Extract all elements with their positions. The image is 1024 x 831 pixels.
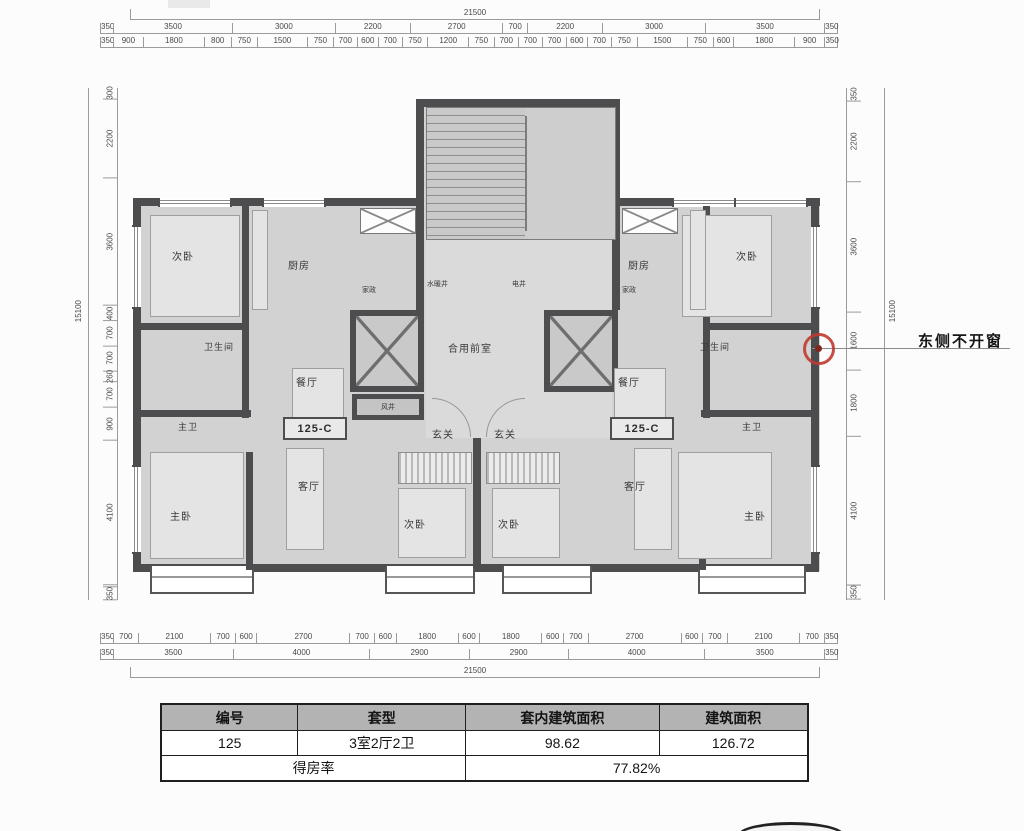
dim-value: 2200 xyxy=(335,23,410,33)
dim-value: 350 xyxy=(824,649,838,659)
bed-master-left xyxy=(150,452,244,559)
top-dim-row-groups: 3503500300022002700700220030003500350 xyxy=(100,20,838,34)
dim-value: 600 xyxy=(541,633,562,643)
dim-value: 700 xyxy=(587,37,611,47)
dim-value: 1800 xyxy=(847,371,861,437)
dim-value: 2900 xyxy=(369,649,468,659)
spec-value-gross-area: 126.72 xyxy=(659,730,807,755)
sofa-right xyxy=(634,448,672,550)
dim-value: 3500 xyxy=(705,23,824,33)
bed-master-right xyxy=(678,452,772,559)
spec-value-interior-area: 98.62 xyxy=(465,730,659,755)
dim-value: 700 xyxy=(103,321,117,347)
dim-value: 350 xyxy=(100,649,113,659)
dim-value: 3600 xyxy=(103,178,117,306)
room-label-master-bath-left: 主卫 xyxy=(178,420,198,433)
window-top-4 xyxy=(734,198,808,207)
dim-value: 3500 xyxy=(113,649,233,659)
spec-table-data-row: 125 3室2厅2卫 98.62 126.72 xyxy=(162,730,807,755)
kitchen-counter-right xyxy=(690,210,706,310)
bay-window-4 xyxy=(698,566,806,594)
bottom-dim-row-groups: 350350040002900290040003500350 xyxy=(100,646,838,660)
dim-value: 700 xyxy=(494,37,518,47)
dim-value: 350 xyxy=(847,88,861,102)
window-right-1 xyxy=(811,225,820,309)
dim-value: 600 xyxy=(374,633,395,643)
dim-value: 750 xyxy=(231,37,257,47)
room-label-foyer-left: 玄关 xyxy=(432,426,454,441)
left-dim-column: 300220036004007007002607009004100350 xyxy=(103,88,118,600)
spec-value-layout: 3室2厅2卫 xyxy=(297,730,465,755)
dim-value: 2200 xyxy=(527,23,602,33)
dim-value: 350 xyxy=(100,37,113,47)
dim-value: 750 xyxy=(611,37,637,47)
dim-value: 2700 xyxy=(410,23,502,33)
bay-window-1 xyxy=(150,566,254,594)
room-label-master-bath-right: 主卫 xyxy=(742,420,762,433)
spec-table: 编号 套型 套内建筑面积 建筑面积 125 3室2厅2卫 98.62 126.7… xyxy=(160,703,809,782)
room-label-bathroom-left: 卫生间 xyxy=(204,340,234,353)
elevator-right xyxy=(544,310,618,392)
dim-value: 350 xyxy=(847,585,861,600)
elevator-x-icon xyxy=(550,316,612,386)
right-total-dim-line xyxy=(884,88,885,600)
room-label-electrical-shaft: 电井 xyxy=(512,279,526,289)
room-label-shared-lobby: 合用前室 xyxy=(448,340,492,355)
dim-value: 900 xyxy=(103,408,117,441)
top-dim-total-row: 21500 xyxy=(130,6,820,20)
dim-value: 350 xyxy=(103,586,117,600)
wall-int-5 xyxy=(246,452,253,570)
dim-value: 600 xyxy=(235,633,256,643)
dim-value: 350 xyxy=(824,633,838,643)
bed-top-left xyxy=(150,215,240,317)
room-label-housekeeping-left: 家政 xyxy=(362,285,376,295)
unit-code-right: 125-C xyxy=(610,417,674,440)
right-total-dim: 15100 xyxy=(888,300,897,322)
spec-header-layout: 套型 xyxy=(297,705,465,730)
logo-partial xyxy=(738,822,844,831)
wall-int-9 xyxy=(701,410,819,417)
window-top-1 xyxy=(158,198,232,207)
wall-center-divider xyxy=(473,438,481,568)
room-label-housekeeping-right: 家政 xyxy=(622,285,636,295)
elevator-x-icon xyxy=(356,316,418,386)
closet-hatch-left xyxy=(398,452,472,484)
dim-value: 700 xyxy=(563,633,588,643)
dim-value: 1500 xyxy=(257,37,307,47)
x-window-left xyxy=(360,208,416,234)
dim-value: 350 xyxy=(100,23,113,33)
dim-value: 350 xyxy=(100,633,113,643)
dim-value: 2200 xyxy=(103,100,117,178)
room-label-living-right: 客厅 xyxy=(624,478,646,493)
dim-value: 700 xyxy=(349,633,374,643)
sofa-left xyxy=(286,448,324,550)
dim-value: 700 xyxy=(113,633,138,643)
spec-footer-efficiency-value: 77.82% xyxy=(465,755,807,780)
room-label-bathroom-right: 卫生间 xyxy=(700,340,730,353)
wall-int-1 xyxy=(242,206,249,328)
dim-value: 700 xyxy=(799,633,824,643)
room-label-foyer-right: 玄关 xyxy=(494,426,516,441)
dim-value: 3500 xyxy=(704,649,824,659)
window-left-2 xyxy=(132,465,141,554)
room-label-kitchen-right: 厨房 xyxy=(628,257,650,272)
dim-value: 700 xyxy=(502,23,527,33)
spec-value-number: 125 xyxy=(162,730,297,755)
elevator-left xyxy=(350,310,424,392)
dim-value: 1800 xyxy=(396,633,458,643)
right-dim-column: 35022003600160018004100350 xyxy=(846,88,861,600)
dim-value: 900 xyxy=(794,37,825,47)
stair-divider xyxy=(525,116,527,231)
dim-value: 300 xyxy=(103,88,117,100)
closet-hatch-right xyxy=(486,452,560,484)
wall-tower-left xyxy=(416,101,424,207)
spec-header-number: 编号 xyxy=(162,705,297,730)
room-label-kitchen-left: 厨房 xyxy=(288,257,310,272)
dim-value: 1800 xyxy=(479,633,541,643)
bottom-dim-row-detail: 3507002100700600270070060018006001800600… xyxy=(100,630,838,644)
bay-window-2 xyxy=(385,566,475,594)
dim-value: 600 xyxy=(357,37,378,47)
annotation-text: 东侧不开窗 xyxy=(918,330,1003,351)
spec-table-header-row: 编号 套型 套内建筑面积 建筑面积 xyxy=(162,705,807,730)
room-label-bed-top-left: 次卧 xyxy=(172,248,194,263)
dim-value: 2200 xyxy=(847,102,861,182)
dim-value: 2100 xyxy=(138,633,210,643)
dim-value: 4100 xyxy=(847,437,861,586)
dim-value: 21500 xyxy=(130,9,820,19)
bay-window-3 xyxy=(502,566,592,594)
dim-value: 2100 xyxy=(727,633,799,643)
spec-header-interior-area: 套内建筑面积 xyxy=(465,705,659,730)
dim-value: 260 xyxy=(103,372,117,382)
wall-lobby-left xyxy=(416,206,424,310)
wall-int-3 xyxy=(242,330,249,418)
room-label-bed-top-right: 次卧 xyxy=(736,248,758,263)
dim-value: 1200 xyxy=(427,37,468,47)
dim-value: 2700 xyxy=(256,633,349,643)
spec-footer-efficiency-label: 得房率 xyxy=(162,755,465,780)
left-total-dim-line xyxy=(88,88,89,600)
room-label-dining-right: 餐厅 xyxy=(618,374,640,389)
spec-header-gross-area: 建筑面积 xyxy=(659,705,807,730)
dim-value: 400 xyxy=(103,306,117,321)
dim-value: 350 xyxy=(824,37,838,47)
dim-value: 4000 xyxy=(233,649,370,659)
x-window-right xyxy=(622,208,678,234)
room-label-dining-left: 餐厅 xyxy=(296,374,318,389)
dim-value: 4100 xyxy=(103,440,117,585)
room-label-bed-bottom-right: 次卧 xyxy=(498,516,520,531)
dim-value: 1800 xyxy=(143,37,203,47)
dim-value: 700 xyxy=(103,382,117,408)
dim-value: 2700 xyxy=(588,633,681,643)
dim-value: 750 xyxy=(307,37,333,47)
dim-value: 700 xyxy=(378,37,402,47)
window-right-2 xyxy=(811,465,820,554)
dim-value: 600 xyxy=(713,37,734,47)
dim-value: 600 xyxy=(681,633,702,643)
unit-code-left: 125-C xyxy=(283,417,347,440)
dim-value: 750 xyxy=(687,37,713,47)
dim-value: 2900 xyxy=(469,649,568,659)
left-total-dim: 15100 xyxy=(74,300,83,322)
dim-value: 700 xyxy=(542,37,566,47)
dim-value: 1500 xyxy=(637,37,687,47)
dim-value: 3000 xyxy=(602,23,704,33)
dim-value: 3600 xyxy=(847,182,861,313)
bottom-dim-total-row: 21500 xyxy=(130,664,820,678)
room-label-living-left: 客厅 xyxy=(298,478,320,493)
room-label-master-bed-left: 主卧 xyxy=(170,508,192,523)
dim-value: 3000 xyxy=(232,23,334,33)
room-label-bed-bottom-left: 次卧 xyxy=(404,516,426,531)
dim-value: 700 xyxy=(333,37,357,47)
room-label-plumbing-shaft: 水暖井 xyxy=(427,279,448,289)
floor-plan-sheet: 21500 3503500300022002700700220030003500… xyxy=(0,0,1024,831)
annotation-red-dot-icon xyxy=(815,345,822,352)
dim-value: 1600 xyxy=(847,312,861,371)
dim-value: 750 xyxy=(402,37,428,47)
window-top-2 xyxy=(262,198,326,207)
dim-value: 750 xyxy=(468,37,494,47)
spec-table-footer-row: 得房率 77.82% xyxy=(162,755,807,780)
top-dim-row-detail: 3509001800800750150075070060070075012007… xyxy=(100,34,838,48)
kitchen-counter-left xyxy=(252,210,268,310)
dim-value: 350 xyxy=(824,23,838,33)
dim-value: 700 xyxy=(210,633,235,643)
room-label-master-bed-right: 主卧 xyxy=(744,508,766,523)
dim-value: 700 xyxy=(518,37,542,47)
wall-int-7 xyxy=(703,323,819,330)
dim-value: 600 xyxy=(458,633,479,643)
wind-shaft-box: 风井 xyxy=(352,394,424,420)
dim-value: 1800 xyxy=(733,37,793,47)
dim-value: 900 xyxy=(113,37,144,47)
dim-value: 800 xyxy=(204,37,231,47)
wall-int-2 xyxy=(133,323,249,330)
wall-int-4 xyxy=(133,410,251,417)
dim-value: 21500 xyxy=(130,667,820,677)
stairwell xyxy=(426,107,616,240)
room-label-wind-shaft: 风井 xyxy=(381,402,395,412)
dim-value: 700 xyxy=(702,633,727,643)
dim-value: 700 xyxy=(103,346,117,372)
wall-tower-top xyxy=(416,99,620,107)
dim-value: 3500 xyxy=(113,23,232,33)
stair-treads xyxy=(427,108,525,239)
dim-value: 600 xyxy=(566,37,587,47)
window-left-1 xyxy=(132,225,141,309)
dim-value: 4000 xyxy=(568,649,705,659)
